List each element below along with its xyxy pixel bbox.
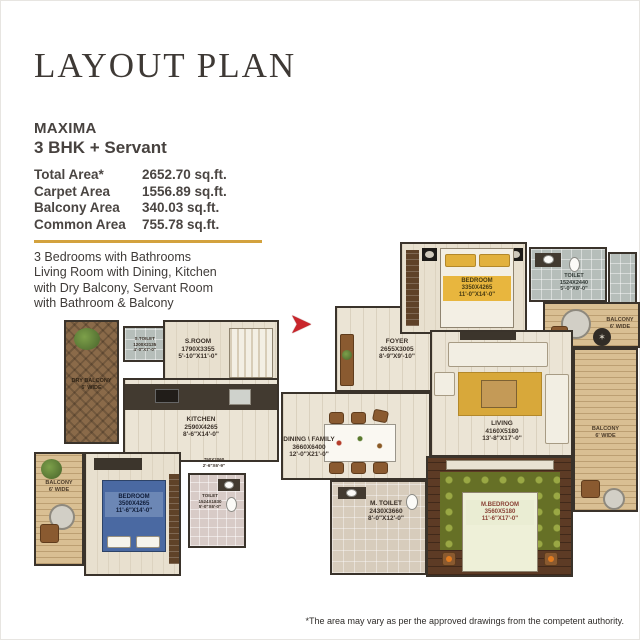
ceiling-fan-icon bbox=[422, 248, 437, 261]
room-toilet-top: TOILET 1524X2440 5'-0"X8'-0" bbox=[529, 247, 607, 302]
room-label: KITCHEN 2590X4265 8'-6"X14'-0" bbox=[125, 416, 277, 439]
room-label: TOILET 1524X2440 5'-0"X8'-0" bbox=[537, 273, 611, 293]
room-label: M.BEDROOM 3560X5180 11'-6"X17'-0" bbox=[466, 500, 534, 525]
room-label: TOILET 1524X1830 5'-0"X6'-0" bbox=[190, 493, 230, 510]
room-label: DINING \ FAMILY 3660X6400 12'-0"X21'-0" bbox=[277, 436, 341, 459]
sink-icon bbox=[224, 481, 234, 489]
lamp-icon bbox=[446, 556, 452, 562]
chair-icon bbox=[40, 524, 59, 543]
room-bedroom-bottom: BEDROOM 3500X4265 11'-6"X14'-0" bbox=[84, 452, 181, 576]
sofa-icon bbox=[448, 342, 548, 367]
room-shaft bbox=[608, 252, 637, 306]
console-icon bbox=[340, 334, 354, 386]
plant-icon bbox=[41, 459, 62, 479]
room-label: M. TOILET 2430X3660 8'-0"X12'-0" bbox=[346, 500, 426, 523]
room-m-bedroom: M.BEDROOM 3560X5180 11'-6"X17'-0" bbox=[426, 456, 573, 577]
room-label: BEDROOM 3350X4265 11'-0"X14'-0" bbox=[443, 276, 511, 301]
plant-icon bbox=[74, 328, 100, 350]
coffee-table-icon bbox=[481, 380, 517, 408]
chair-icon bbox=[329, 412, 344, 424]
desk-icon bbox=[94, 458, 142, 470]
hob-icon bbox=[155, 389, 179, 403]
kitchen-counter-icon bbox=[125, 384, 277, 410]
passage-dims-label: 750X2060 2'-6"X6'-9" bbox=[192, 457, 236, 468]
room-label: S.ROOM 1790X3355 5'-10"X11'-0" bbox=[169, 338, 227, 361]
entry-arrow-icon: ➤ bbox=[289, 310, 312, 338]
room-balcony-right: BALCONY 6' WIDE bbox=[573, 348, 638, 512]
room-label: BALCONY 6' WIDE bbox=[575, 426, 636, 439]
wardrobe-icon bbox=[406, 250, 419, 326]
room-label: FOYER 2655X3005 8'-9"X9'-10" bbox=[365, 338, 429, 361]
room-balcony-bottom-left: BALCONY 6' WIDE bbox=[34, 452, 84, 566]
chair-icon bbox=[581, 480, 600, 498]
lamp-icon bbox=[548, 556, 554, 562]
sink-icon bbox=[346, 489, 357, 497]
room-kitchen: KITCHEN 2590X4265 8'-6"X14'-0" bbox=[123, 378, 279, 462]
room-label: LIVING 4160X5180 13'-8"X17'-0" bbox=[466, 420, 538, 443]
disclaimer-text: *The area may vary as per the approved d… bbox=[306, 616, 625, 626]
room-toilet-bottom: TOILET 1524X1830 5'-0"X6'-0" bbox=[188, 473, 246, 548]
room-label: S.TOILET 1200X2135 4'-0"X7'-0" bbox=[125, 336, 165, 353]
chair-icon bbox=[372, 409, 389, 424]
room-label: BALCONY 6' WIDE bbox=[36, 480, 82, 493]
tv-console-icon bbox=[460, 332, 516, 340]
plant-icon bbox=[342, 350, 352, 360]
chair-icon bbox=[351, 412, 366, 424]
chair-icon bbox=[351, 462, 366, 474]
bed-icon bbox=[229, 328, 273, 378]
toilet-icon bbox=[569, 257, 580, 272]
wardrobe-icon bbox=[169, 474, 179, 564]
room-dining: DINING \ FAMILY 3660X6400 12'-0"X21'-0" bbox=[281, 392, 431, 480]
round-table-icon bbox=[603, 488, 625, 510]
chair-icon bbox=[329, 462, 344, 474]
room-living: LIVING 4160X5180 13'-8"X17'-0" bbox=[430, 330, 573, 457]
pillow-icon bbox=[479, 254, 510, 267]
wardrobe-icon bbox=[446, 460, 554, 470]
room-m-toilet: M. TOILET 2430X3660 8'-0"X12'-0" bbox=[330, 480, 427, 575]
floor-plan: DRY BALCONY 6' WIDE S.TOILET 1200X2135 4… bbox=[0, 0, 640, 640]
room-dry-balcony: DRY BALCONY 6' WIDE bbox=[64, 320, 119, 444]
room-s-room: S.ROOM 1790X3355 5'-10"X11'-0" bbox=[163, 320, 279, 384]
sink-icon bbox=[229, 389, 251, 405]
room-label: BEDROOM 3500X4265 11'-6"X14'-0" bbox=[105, 492, 163, 517]
room-label: BALCONY 6' WIDE bbox=[601, 317, 639, 330]
pillow-icon bbox=[107, 536, 131, 548]
room-label: DRY BALCONY 6' WIDE bbox=[66, 378, 117, 391]
sofa-icon bbox=[545, 374, 569, 444]
armchair-icon bbox=[434, 372, 455, 396]
room-bedroom-top: BEDROOM 3350X4265 11'-0"X14'-0" bbox=[400, 242, 527, 334]
sink-icon bbox=[543, 255, 554, 264]
chair-icon bbox=[373, 462, 388, 474]
pillow-icon bbox=[445, 254, 476, 267]
compass-icon: ✶ bbox=[593, 328, 611, 346]
pillow-icon bbox=[136, 536, 160, 548]
